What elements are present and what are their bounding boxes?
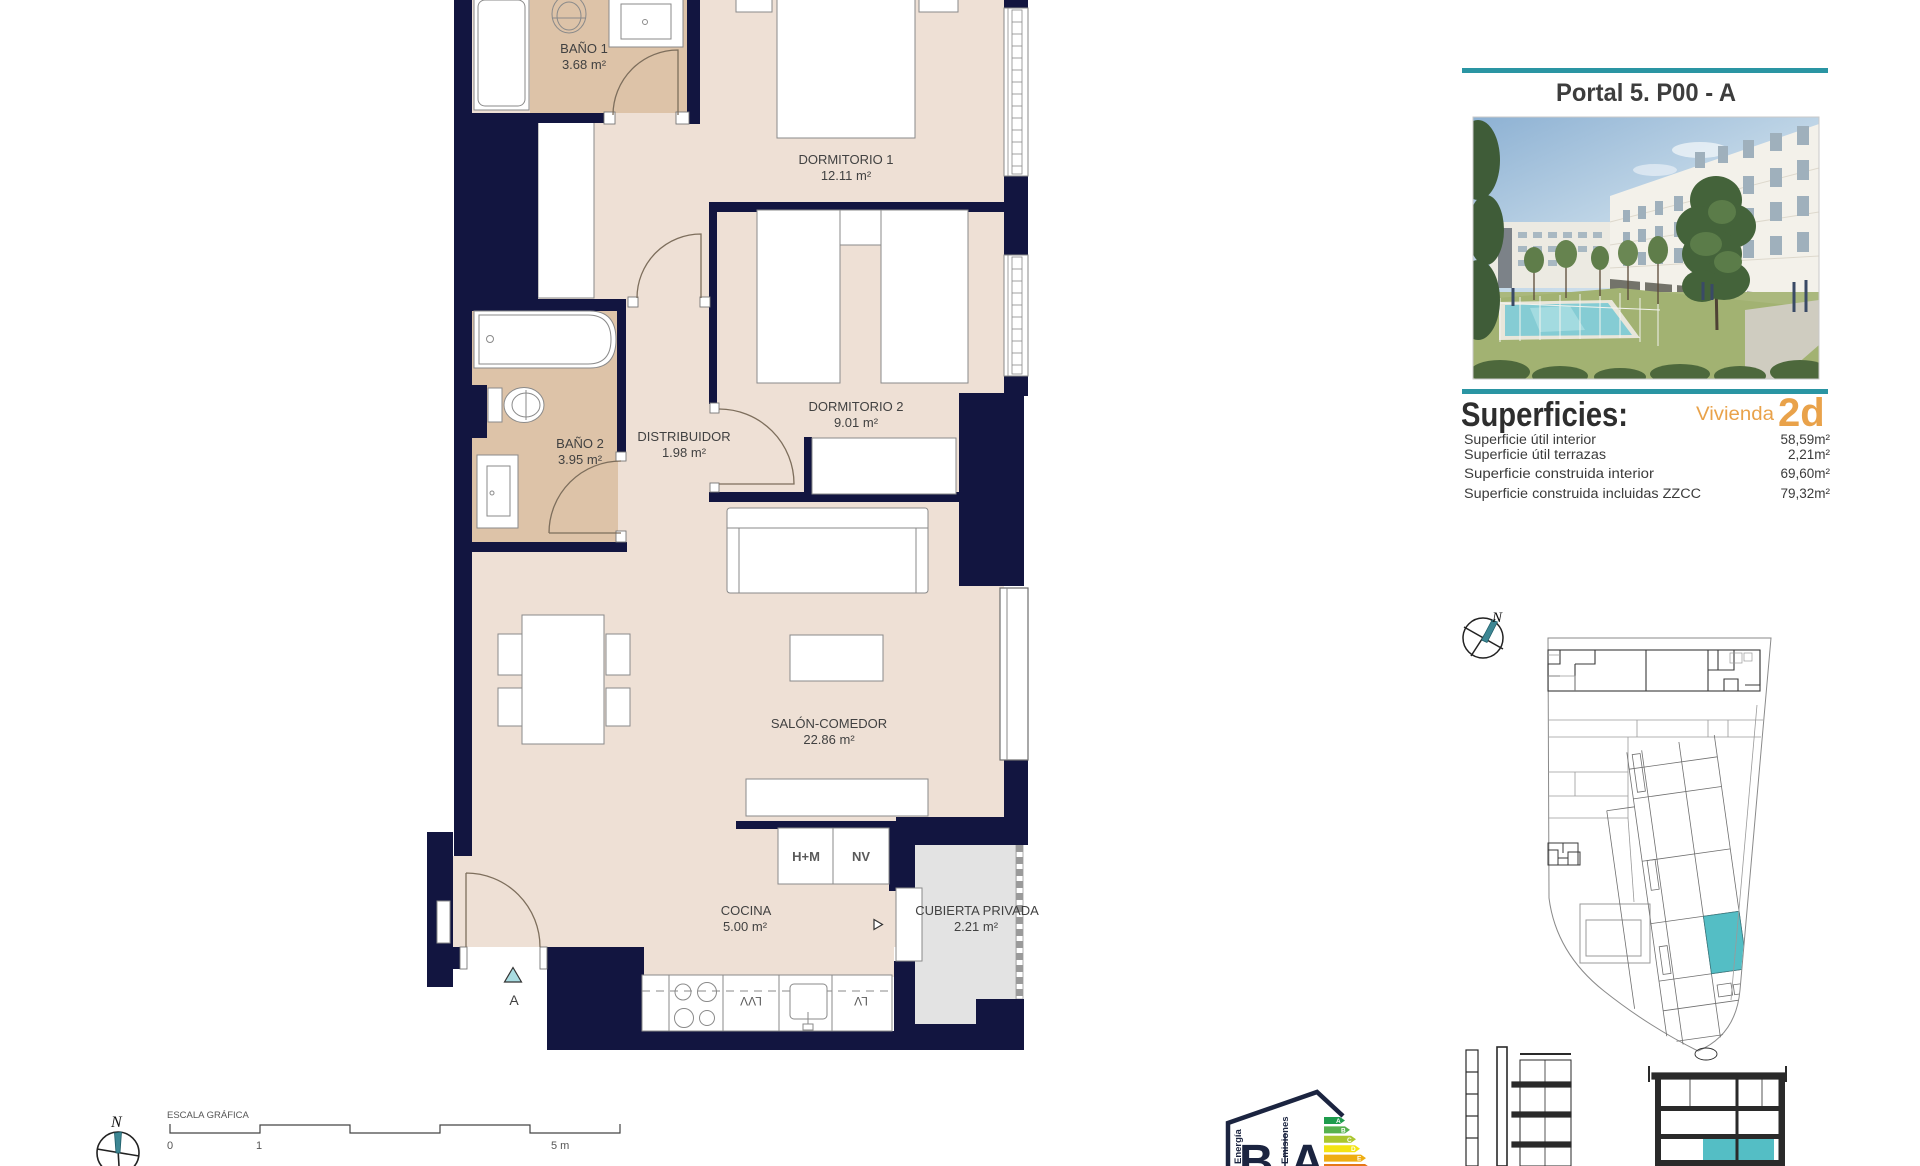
svg-text:A: A [1290, 1136, 1325, 1166]
svg-text:CUBIERTA PRIVADA: CUBIERTA PRIVADA [915, 903, 1039, 918]
svg-text:2.21 m²: 2.21 m² [954, 919, 999, 934]
svg-text:1: 1 [256, 1140, 262, 1152]
svg-text:12.11 m²: 12.11 m² [821, 168, 872, 183]
svg-text:NV: NV [852, 849, 870, 864]
svg-text:Portal 5. P00 - A: Portal 5. P00 - A [1556, 79, 1736, 107]
svg-text:79,32m²: 79,32m² [1780, 486, 1830, 501]
svg-text:LVV: LVV [740, 994, 762, 1008]
svg-text:BAÑO 1: BAÑO 1 [560, 41, 608, 56]
svg-text:Vivienda: Vivienda [1696, 404, 1774, 425]
svg-text:LV: LV [854, 994, 868, 1008]
svg-text:58,59m²: 58,59m² [1780, 432, 1830, 447]
svg-text:A: A [1336, 1118, 1341, 1125]
svg-text:Emisiones: Emisiones [1280, 1116, 1291, 1164]
svg-text:ESCALA GRÁFICA: ESCALA GRÁFICA [167, 1110, 249, 1121]
svg-text:3.95 m²: 3.95 m² [558, 452, 603, 467]
svg-text:2d: 2d [1778, 391, 1825, 435]
svg-text:5.00 m²: 5.00 m² [723, 919, 768, 934]
svg-text:BAÑO 2: BAÑO 2 [556, 436, 604, 451]
svg-text:C: C [1347, 1137, 1352, 1144]
svg-text:Energía: Energía [1233, 1128, 1244, 1164]
svg-text:69,60m²: 69,60m² [1780, 466, 1830, 481]
svg-text:DORMITORIO 1: DORMITORIO 1 [798, 152, 893, 167]
svg-text:Superficie útil terrazas: Superficie útil terrazas [1464, 447, 1606, 462]
svg-text:B: B [1341, 1127, 1346, 1134]
svg-text:5 m: 5 m [551, 1140, 569, 1152]
svg-text:D: D [1351, 1146, 1356, 1153]
svg-text:N: N [1491, 610, 1503, 626]
svg-text:Superficie útil interior: Superficie útil interior [1464, 432, 1597, 447]
svg-text:Superficie construida incluida: Superficie construida incluidas ZZCC [1464, 486, 1701, 501]
svg-text:B: B [1239, 1136, 1274, 1166]
svg-text:Superficie construida interior: Superficie construida interior [1464, 466, 1655, 481]
svg-text:N: N [110, 1114, 123, 1131]
svg-text:SALÓN-COMEDOR: SALÓN-COMEDOR [771, 716, 887, 731]
svg-text:0: 0 [167, 1140, 173, 1152]
svg-text:DORMITORIO 2: DORMITORIO 2 [808, 399, 903, 414]
svg-text:22.86 m²: 22.86 m² [803, 732, 855, 747]
svg-text:9.01 m²: 9.01 m² [834, 415, 879, 430]
svg-text:COCINA: COCINA [721, 903, 772, 918]
svg-text:H+M: H+M [792, 849, 820, 864]
svg-text:1.98 m²: 1.98 m² [662, 445, 707, 460]
svg-text:DISTRIBUIDOR: DISTRIBUIDOR [637, 429, 730, 444]
svg-text:E: E [1357, 1156, 1362, 1163]
svg-text:Superficies:: Superficies: [1461, 396, 1628, 434]
svg-text:3.68 m²: 3.68 m² [562, 57, 607, 72]
svg-text:A: A [509, 992, 519, 1008]
svg-text:2,21m²: 2,21m² [1788, 447, 1831, 462]
